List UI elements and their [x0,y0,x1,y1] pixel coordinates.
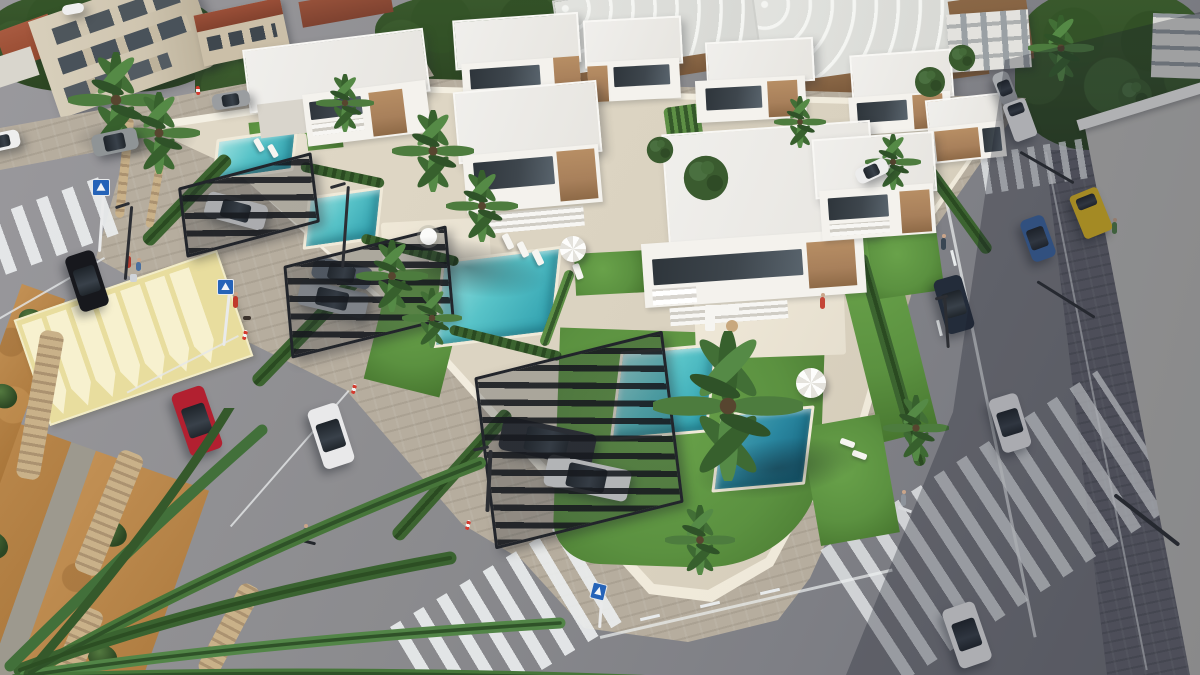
balcony-railing [829,220,890,236]
dog [243,316,251,320]
car-glass [221,93,240,107]
pedestrian [233,296,238,308]
villa-facade [928,120,1007,164]
aerial-villa-development-render [0,0,1200,675]
large-palm-tree [653,331,803,481]
pedestrian [941,238,946,250]
stroller [130,274,137,282]
pedestrian-crossing-sign [217,279,234,295]
palm-tree-dark [1028,15,1094,81]
palm-tree [402,288,462,348]
car-glass [72,264,101,296]
car-glass [0,133,12,149]
pedestrian-child [136,262,141,271]
palm-tree [883,395,949,461]
foreground-palm-fronds [0,408,660,675]
round-tree [638,128,682,172]
villa-facade [819,183,936,241]
villa-side [257,99,309,139]
car-glass [103,132,127,152]
car-glass [996,79,1013,98]
van-glass [1007,101,1026,116]
lawn [574,250,646,296]
round-tree [940,36,984,80]
window [828,194,889,220]
window [705,86,762,111]
pedestrian-crossing-sign [92,179,110,196]
car-glass [996,407,1024,438]
outdoor-sofa [705,305,715,331]
palm-tree [774,96,826,148]
pedestrian [820,297,825,309]
window [613,64,670,87]
window-wall [652,249,803,285]
palm-tree [665,505,735,575]
car-glass [1026,225,1050,250]
palm-tree [316,74,374,132]
parasol [560,236,586,262]
car-glass [951,617,983,652]
window [982,127,1002,153]
sign-triangle-icon [95,182,106,193]
palm-tree [446,170,518,242]
wood-panel [556,148,598,201]
villa-facade [587,58,681,103]
entry-stairs [652,286,697,305]
van-glass [1075,192,1099,212]
scooter-rider [901,494,906,506]
pedestrian [1112,222,1117,234]
traffic-bollard [196,86,201,95]
wood-panel [899,189,932,233]
sign-triangle-icon [220,282,231,292]
wood-panel [806,239,857,288]
wood-panel [934,127,981,161]
